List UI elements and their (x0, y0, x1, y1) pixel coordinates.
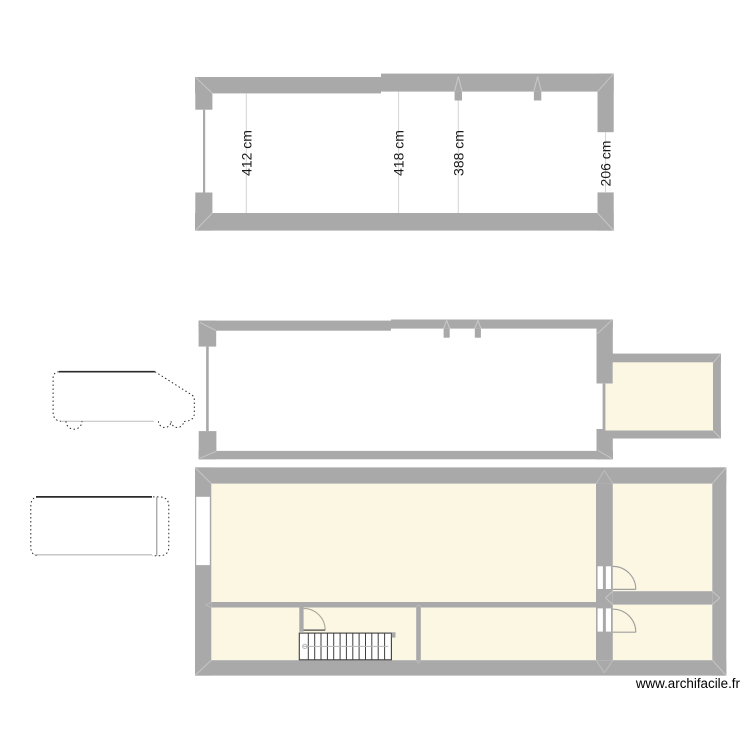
svg-text:418 cm: 418 cm (391, 130, 407, 176)
svg-text:388 cm: 388 cm (450, 130, 466, 176)
svg-text:www.archifacile.fr: www.archifacile.fr (635, 676, 741, 691)
svg-text:412 cm: 412 cm (238, 130, 254, 176)
svg-text:206 cm: 206 cm (598, 141, 614, 187)
